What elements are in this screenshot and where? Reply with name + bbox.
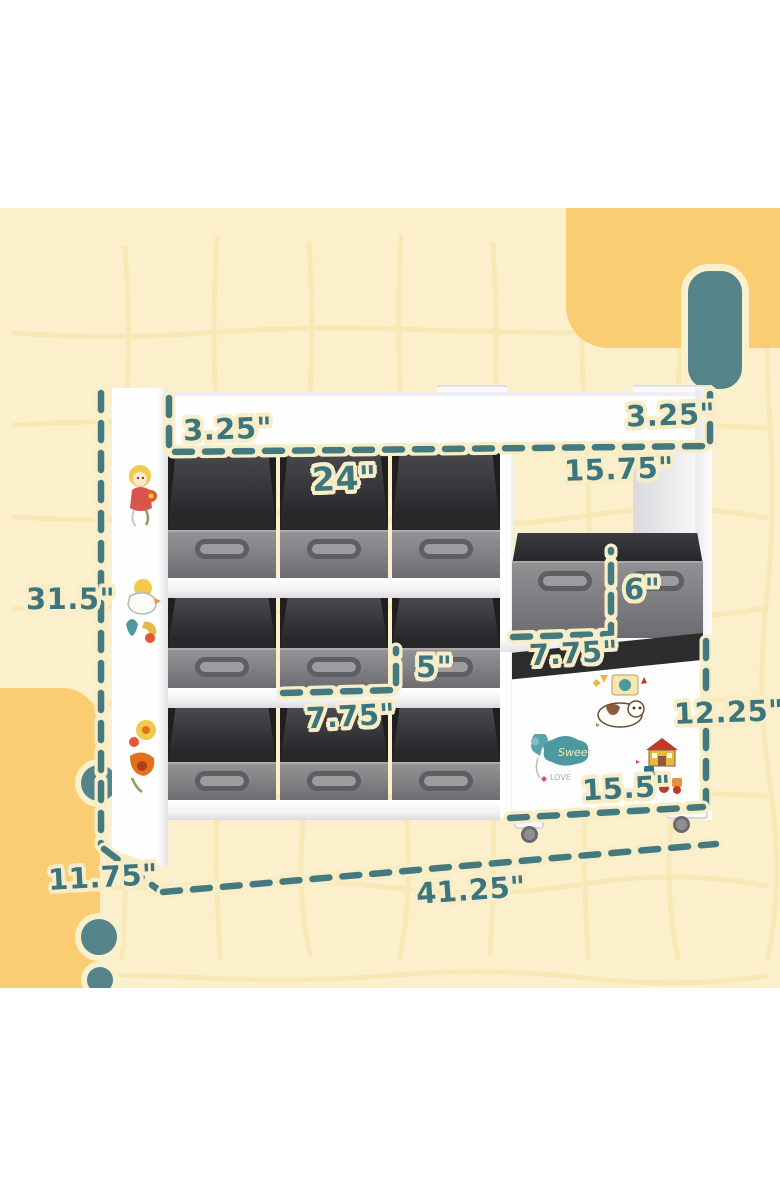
sticker-love-text: LOVE [550,773,571,782]
dim-label-top-left-thickness: 3.25" [182,410,272,447]
caster-bracket [666,804,708,819]
left-bin-section [168,452,500,820]
sticker-cloud-text: Sweet [558,746,593,759]
product-dimension-diagram: Sweet LOVE [0,0,780,1196]
fabric-bin [168,598,276,688]
fabric-bin [392,708,500,800]
dim-label-left-section-width: 24" [311,458,377,499]
dim-label-cabinet-height: 12.25" [673,693,780,731]
fabric-bin [280,598,388,688]
dim-label-cabinet-width: 15.5" [581,769,672,808]
sticker-flowers [124,716,162,800]
toy-storage-organizer: Sweet LOVE [0,0,780,1196]
sticker-cat [592,673,652,729]
dim-label-right-bin-depth: 7.75" [528,634,619,673]
dim-label-left-bin-depth: 7.75" [305,697,396,736]
shelf-board [168,578,500,598]
right-wide-bin [512,533,703,638]
fabric-bin [168,452,276,578]
caster-left [514,814,544,843]
bin-handle [195,539,249,559]
caster-right [666,804,708,833]
caster-wheel [673,816,690,833]
bin-handle [195,771,249,791]
dim-label-overall-height: 31.5" [26,582,115,616]
sticker-goose [120,576,162,654]
dim-label-right-cubby-width: 15.75" [563,450,674,488]
bin-handle [419,539,473,559]
bin-handle [307,539,361,559]
dim-label-left-bin-height: 5" [416,650,452,684]
dim-label-top-right-thickness: 3.25" [625,396,715,433]
bin-seam [607,561,609,638]
fabric-bin [392,452,500,578]
bin-handle [307,771,361,791]
sticker-girl [124,462,160,528]
bin-handle [538,571,592,591]
bin-handle [195,657,249,677]
caster-wheel [521,826,538,843]
bin-handle [307,657,361,677]
bottom-board [168,800,500,820]
left-side-panel [112,388,168,868]
bin-handle [419,771,473,791]
fabric-bin [168,708,276,800]
dim-label-right-bin-height: 6" [624,572,660,606]
dim-label-overall-depth: 11.75" [47,857,158,897]
